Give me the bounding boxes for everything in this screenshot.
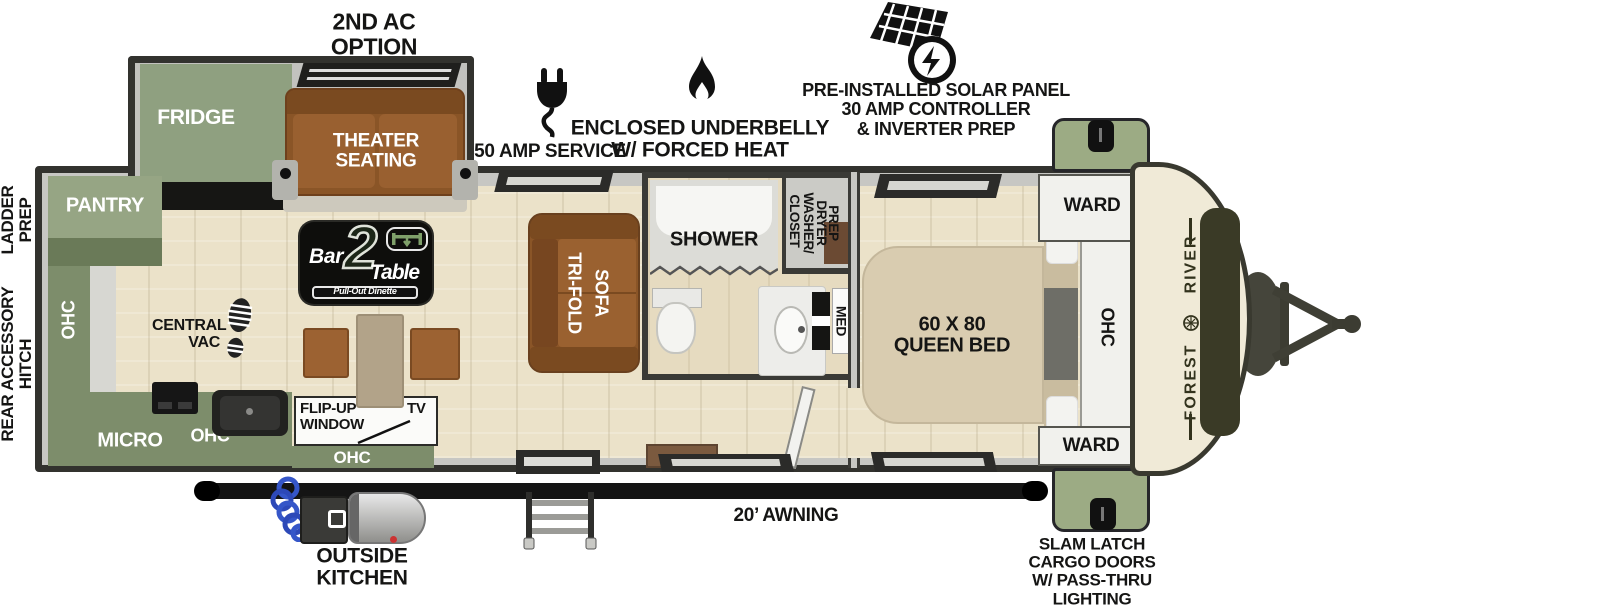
logo-bar-text: Bar bbox=[309, 246, 343, 268]
queen-bed-label: 60 X 80 QUEEN BED bbox=[894, 315, 1010, 358]
outside-kitchen-label: OUTSIDE KITCHEN bbox=[316, 546, 407, 591]
bottom-wall-window bbox=[658, 454, 794, 472]
shower-glass-door bbox=[650, 264, 778, 278]
brand-dash-bottom bbox=[1189, 414, 1192, 440]
closet-label-line4: PREP bbox=[826, 205, 840, 241]
closet-label-line1: CLOSET bbox=[787, 195, 801, 248]
dinette-stool-right bbox=[410, 328, 460, 380]
water-heater-tank-icon bbox=[348, 492, 426, 544]
burner bbox=[178, 402, 192, 409]
front-ohc-label: OHC bbox=[1097, 307, 1116, 346]
cooktop bbox=[152, 382, 198, 414]
shower-label: SHOWER bbox=[670, 229, 758, 250]
micro-label: MICRO bbox=[97, 430, 162, 451]
central-vac-label: CENTRAL VAC bbox=[152, 317, 220, 351]
faucet bbox=[246, 408, 253, 415]
solar-label: PRE-INSTALLED SOLAR PANEL 30 AMP CONTROL… bbox=[802, 81, 1070, 139]
tank-valve bbox=[390, 536, 397, 543]
dinette-table bbox=[356, 314, 404, 408]
awning-end-cap-left bbox=[194, 481, 220, 501]
underbelly-label: ENCLOSED UNDERBELLY W/ FORCED HEAT bbox=[571, 118, 829, 163]
pantry-interior-strip bbox=[88, 266, 116, 392]
dinette-stool-left bbox=[303, 328, 349, 378]
bed-blanket bbox=[1044, 288, 1078, 380]
ladder-prep-label: LADDER PREP bbox=[0, 185, 35, 254]
sofa-backrest bbox=[532, 239, 558, 347]
logo-subtitle-text: Pull-Out Dinette bbox=[314, 287, 416, 297]
galley-ohc-label: OHC bbox=[334, 449, 371, 467]
theater-seating-label: THEATER SEATING bbox=[333, 132, 419, 173]
slam-latch-icon-bottom bbox=[1090, 498, 1116, 530]
med-label: MED bbox=[834, 306, 849, 336]
griddle-handle bbox=[328, 510, 346, 528]
trifold-sofa-label-line1: TRI-FOLD bbox=[564, 252, 583, 334]
burner bbox=[158, 402, 172, 409]
pullout-dinette-icon bbox=[386, 227, 428, 251]
solar-panel-icon bbox=[862, 0, 956, 86]
cupholder bbox=[460, 168, 471, 179]
window-stripe bbox=[307, 77, 450, 80]
pantry-cabinet-front bbox=[48, 238, 162, 266]
cupholder bbox=[280, 168, 291, 179]
toilet-bowl bbox=[656, 302, 696, 354]
slideout-window bbox=[297, 63, 462, 87]
pantry-label: PANTRY bbox=[66, 195, 144, 216]
top-wall-window bbox=[494, 170, 613, 192]
rear-accessory-hitch-label: REAR ACCESSORY HITCH bbox=[0, 286, 35, 441]
hitch-tongue bbox=[1244, 268, 1370, 380]
awning-end-cap-right bbox=[1022, 481, 1048, 501]
entry-door-frame bbox=[516, 450, 600, 474]
slam-latch-icon-top bbox=[1088, 120, 1114, 152]
brand-dash-top bbox=[1189, 218, 1192, 244]
wardrobe-top-label: WARD bbox=[1064, 196, 1121, 216]
latch-slit bbox=[1099, 128, 1102, 142]
theater-side-table-left bbox=[272, 160, 298, 200]
fridge-label: FRIDGE bbox=[157, 107, 235, 129]
med-cabinet-gap bbox=[812, 316, 830, 326]
theater-side-table-right bbox=[452, 160, 478, 200]
rear-ohc-label: OHC bbox=[59, 300, 78, 339]
logo-table-text: Table bbox=[370, 262, 419, 284]
power-plug-icon bbox=[532, 68, 572, 138]
entry-steps-icon bbox=[518, 492, 602, 550]
rv-floorplan-canvas: FRIDGE THEATER SEATING PANTRY OHC MICRO … bbox=[0, 0, 1600, 610]
med-cabinet bbox=[812, 292, 830, 350]
sofa-armrest-bottom bbox=[530, 347, 638, 371]
window-stripe bbox=[309, 69, 452, 72]
griddle-icon bbox=[300, 496, 348, 544]
latch-slit bbox=[1101, 507, 1104, 521]
vanity-faucet bbox=[798, 326, 805, 333]
trifold-sofa-label-line2: SOFA bbox=[591, 269, 610, 317]
front-cap-window bbox=[1200, 208, 1240, 436]
shower-stall bbox=[650, 180, 778, 270]
awning-label: 20’ AWNING bbox=[733, 506, 838, 526]
kitchen-sink bbox=[212, 390, 288, 436]
brand-word-forest: FOREST bbox=[1182, 344, 1199, 421]
cargo-doors-label: SLAM LATCH CARGO DOORS W/ PASS-THRU LIGH… bbox=[1028, 536, 1155, 609]
closet-bottom-wall bbox=[782, 268, 854, 274]
bar2table-logo: Bar 2 Table Pull-Out Dinette bbox=[300, 222, 432, 304]
wardrobe-bottom-label: WARD bbox=[1063, 436, 1120, 456]
bedroom-door-opening bbox=[846, 388, 862, 458]
bedroom-top-window bbox=[874, 174, 1002, 198]
tank-band bbox=[350, 494, 359, 542]
forest-river-emblem-icon bbox=[1182, 314, 1200, 332]
sofa-armrest-top bbox=[530, 215, 638, 239]
flame-icon bbox=[684, 56, 720, 110]
bedroom-bottom-window bbox=[871, 452, 997, 472]
theater-footrest bbox=[283, 196, 467, 212]
second-ac-option-label: 2ND AC OPTION bbox=[331, 9, 417, 58]
theater-backrest bbox=[287, 90, 463, 114]
